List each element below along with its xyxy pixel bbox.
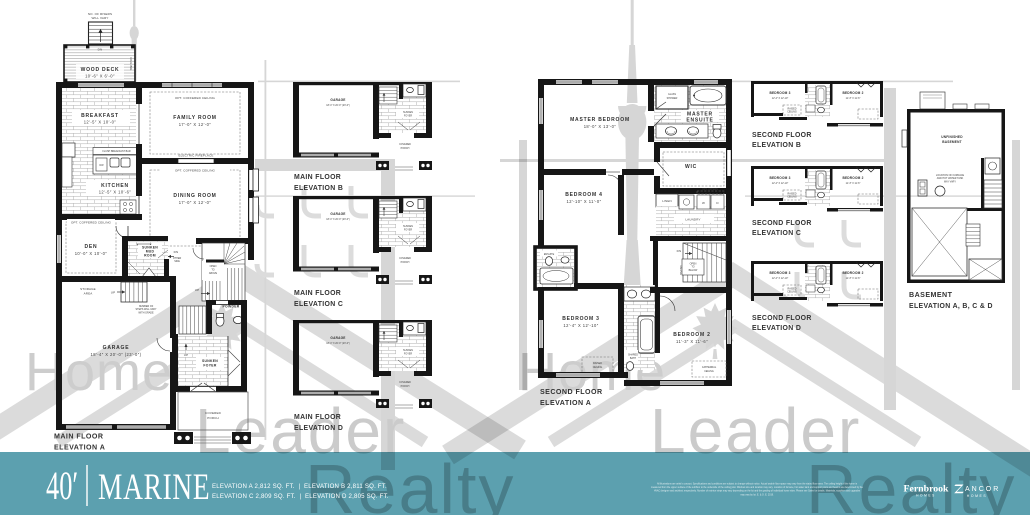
svg-text:DN: DN [98, 48, 103, 52]
svg-text:FOYER: FOYER [404, 229, 413, 232]
svg-text:CEILING: CEILING [787, 291, 797, 294]
svg-text:RAILING: RAILING [129, 57, 133, 71]
svg-text:WITH GRADE: WITH GRADE [138, 311, 154, 314]
svg-text:BEDROOM 2: BEDROOM 2 [842, 91, 863, 95]
svg-text:All illustrations are artist’s: All illustrations are artist’s concept. … [657, 483, 858, 486]
svg-text:ABOVE: ABOVE [209, 272, 218, 275]
svg-text:OPT. COFFERED CEILING: OPT. COFFERED CEILING [175, 169, 216, 173]
svg-text:COVERED: COVERED [399, 143, 411, 146]
svg-text:ELEVATION B: ELEVATION B [294, 185, 343, 192]
svg-text:ELEVATION C: ELEVATION C [752, 230, 801, 237]
svg-text:Realty: Realty [806, 450, 1016, 515]
svg-text:STORAGE: STORAGE [80, 287, 96, 291]
svg-text:PORCH: PORCH [207, 416, 219, 420]
svg-text:18′-4″ X 20′-0″ (23′-0″): 18′-4″ X 20′-0″ (23′-0″) [326, 342, 350, 345]
svg-text:UNFINISHED: UNFINISHED [941, 135, 963, 139]
svg-text:BEDROOM 2: BEDROOM 2 [673, 332, 710, 338]
svg-text:SECOND FLOOR: SECOND FLOOR [752, 132, 812, 139]
svg-text:BREAKFAST: BREAKFAST [81, 113, 119, 119]
svg-text:MAIN FLOOR: MAIN FLOOR [294, 290, 341, 297]
svg-text:WOOD DECK: WOOD DECK [81, 67, 120, 73]
svg-text:SECOND FLOOR: SECOND FLOOR [752, 220, 812, 227]
svg-text:40′: 40′ [46, 465, 78, 509]
svg-text:SUNKEN: SUNKEN [202, 359, 218, 363]
svg-text:BEDROOM 2: BEDROOM 2 [842, 176, 863, 180]
svg-text:SECOND FLOOR: SECOND FLOOR [540, 388, 603, 396]
svg-text:LINEN: LINEN [662, 199, 672, 203]
svg-text:BEDROOM 4: BEDROOM 4 [565, 192, 602, 198]
svg-text:ELEVATION C 2,809 SQ. FT. |: ELEVATION C 2,809 SQ. FT. | ELEVATION D … [212, 493, 389, 500]
svg-text:ENSUITE: ENSUITE [686, 118, 713, 124]
svg-text:SIDE: SIDE [174, 260, 180, 263]
svg-text:POWDER: POWDER [222, 305, 239, 309]
svg-text:AREA: AREA [84, 292, 93, 296]
svg-text:PORCH: PORCH [401, 147, 410, 150]
svg-text:HOMES: HOMES [916, 494, 936, 498]
svg-text:ELEVATION C: ELEVATION C [294, 301, 343, 308]
svg-text:UP: UP [195, 288, 199, 292]
svg-text:18′-4″ X 20′-0″ (23′-0″): 18′-4″ X 20′-0″ (23′-0″) [326, 104, 350, 107]
svg-text:MAIN FLOOR: MAIN FLOOR [294, 174, 341, 181]
svg-text:ELEVATION A 2,812 SQ. FT. |: ELEVATION A 2,812 SQ. FT. | ELEVATION B … [212, 483, 387, 490]
svg-text:GARAGE: GARAGE [330, 98, 345, 102]
svg-text:DN: DN [677, 249, 682, 253]
svg-text:ROOM: ROOM [144, 254, 156, 258]
svg-text:BEDROOM 2: BEDROOM 2 [842, 271, 863, 275]
svg-text:10′-0″ X 10′-0″: 10′-0″ X 10′-0″ [75, 251, 108, 256]
svg-text:FOYER: FOYER [404, 115, 413, 118]
svg-text:MAIN FLOOR: MAIN FLOOR [294, 414, 341, 421]
svg-text:HVAC designer and architect re: HVAC designer and architect respectively… [654, 490, 861, 493]
svg-text:WILL VARY: WILL VARY [92, 16, 109, 20]
svg-text:ENSUITE: ENSUITE [544, 253, 555, 256]
svg-text:CATHEDRAL: CATHEDRAL [702, 366, 717, 369]
svg-text:ELEVATION A: ELEVATION A [540, 399, 591, 407]
svg-text:BEDROOM 3: BEDROOM 3 [769, 176, 790, 180]
svg-text:BEDROOM 3: BEDROOM 3 [769, 271, 790, 275]
svg-text:PORCH: PORCH [401, 261, 410, 264]
svg-text:SHOWER: SHOWER [667, 97, 678, 100]
svg-text:12′-4″ X 12′-10″: 12′-4″ X 12′-10″ [563, 323, 598, 328]
svg-text:COVERED: COVERED [399, 257, 411, 260]
svg-text:FOYER: FOYER [404, 353, 413, 356]
svg-text:BASEMENT: BASEMENT [942, 140, 962, 144]
svg-text:ELEVATION B: ELEVATION B [752, 142, 801, 149]
svg-text:17′-0″ X 12′-0″: 17′-0″ X 12′-0″ [179, 122, 212, 127]
svg-text:UP: UP [184, 353, 188, 357]
svg-text:GARAGE: GARAGE [330, 336, 345, 340]
svg-text:BASEMENT: BASEMENT [909, 291, 953, 299]
svg-text:measured from the upper surfac: measured from the upper surface of the s… [651, 486, 864, 489]
svg-text:PORCH: PORCH [401, 385, 410, 388]
svg-text:WIC: WIC [685, 164, 697, 170]
svg-text:18′-0″ X 13′-0″: 18′-0″ X 13′-0″ [584, 124, 617, 129]
svg-text:11′-3″ X 11′-6″: 11′-3″ X 11′-6″ [846, 182, 861, 185]
svg-text:Home: Home [25, 342, 173, 402]
svg-text:12′-4″ X 12′-10″: 12′-4″ X 12′-10″ [772, 182, 789, 185]
svg-text:MASTER BEDROOM: MASTER BEDROOM [570, 117, 630, 123]
svg-text:DINING ROOM: DINING ROOM [173, 193, 216, 199]
svg-text:RAISED: RAISED [593, 362, 602, 365]
svg-text:may vary by lot. E. & O. E. 20: may vary by lot. E. & O. E. 2019. [740, 493, 774, 496]
svg-text:OPT. COFFERED CEILING: OPT. COFFERED CEILING [71, 221, 112, 225]
svg-text:OPT. COFFERED CEILING: OPT. COFFERED CEILING [175, 96, 216, 100]
svg-text:LAUNDRY: LAUNDRY [685, 218, 700, 222]
svg-text:ANCOR: ANCOR [965, 486, 1000, 493]
svg-text:FOYER: FOYER [203, 364, 216, 368]
svg-text:18′-4″ X 20′-0″ (23′-0″): 18′-4″ X 20′-0″ (23′-0″) [326, 218, 350, 221]
svg-text:12′-4″ X 12′-10″: 12′-4″ X 12′-10″ [772, 97, 789, 100]
svg-text:ELEVATION A: ELEVATION A [54, 444, 105, 452]
svg-text:BEDROOM 3: BEDROOM 3 [562, 316, 599, 322]
svg-text:ELEVATION A, B, C & D: ELEVATION A, B, C & D [909, 303, 993, 310]
svg-text:W: W [702, 201, 705, 205]
svg-text:ELEVATION D: ELEVATION D [752, 325, 801, 332]
svg-text:SECOND FLOOR: SECOND FLOOR [752, 315, 812, 322]
svg-text:MARINE: MARINE [98, 467, 210, 508]
svg-text:11′-3″ X 11′-6″: 11′-3″ X 11′-6″ [846, 277, 861, 280]
svg-text:UP: UP [111, 291, 115, 295]
svg-text:MAIN FLOOR: MAIN FLOOR [54, 433, 103, 441]
svg-text:HOMES: HOMES [967, 494, 987, 498]
svg-text:CEILING: CEILING [787, 111, 797, 114]
svg-text:12′-5″ X 10′-0″: 12′-5″ X 10′-0″ [84, 120, 117, 125]
svg-text:COVERED: COVERED [205, 411, 222, 415]
svg-text:12′-4″ X 12′-10″: 12′-4″ X 12′-10″ [772, 277, 789, 280]
svg-text:DN: DN [174, 250, 179, 254]
svg-text:BELOW: BELOW [689, 269, 698, 272]
svg-text:BEDROOM 3: BEDROOM 3 [769, 91, 790, 95]
svg-text:CEILING: CEILING [704, 370, 714, 373]
svg-text:FAMILY ROOM: FAMILY ROOM [173, 115, 217, 121]
svg-text:OPT. UPPERS: OPT. UPPERS [702, 188, 718, 191]
svg-text:CEILING: CEILING [593, 366, 603, 369]
svg-text:10′-6″ X 6′-0″: 10′-6″ X 6′-0″ [85, 74, 115, 79]
svg-text:GARAGE: GARAGE [103, 345, 130, 351]
svg-text:GLASS: GLASS [668, 93, 676, 96]
svg-text:GARAGE: GARAGE [330, 212, 345, 216]
svg-text:11′-3″ X 11′-6″: 11′-3″ X 11′-6″ [846, 97, 861, 100]
svg-text:11′-3″ X 11′-6″: 11′-3″ X 11′-6″ [676, 339, 708, 344]
svg-text:17′-0″ X 12′-0″: 17′-0″ X 12′-0″ [179, 200, 212, 205]
svg-text:ELEVATION D: ELEVATION D [294, 425, 343, 432]
svg-text:MAY VARY: MAY VARY [944, 180, 956, 183]
svg-text:KITCHEN: KITCHEN [101, 183, 129, 189]
svg-text:BATH: BATH [630, 357, 636, 360]
svg-text:12′-10″ X 11′-0″: 12′-10″ X 11′-0″ [567, 199, 602, 204]
svg-text:COVERED: COVERED [399, 381, 411, 384]
svg-text:18′-4″ X 20′-0″ (23′-0″): 18′-4″ X 20′-0″ (23′-0″) [91, 352, 142, 357]
svg-text:12′-5″ X 10′-6″: 12′-5″ X 10′-6″ [99, 190, 132, 195]
svg-text:CEILING: CEILING [787, 196, 797, 199]
svg-text:FLUSH BREAKFAST BAR: FLUSH BREAKFAST BAR [102, 150, 130, 153]
svg-text:DEN: DEN [85, 244, 98, 250]
svg-text:RAILING: RAILING [679, 265, 682, 275]
